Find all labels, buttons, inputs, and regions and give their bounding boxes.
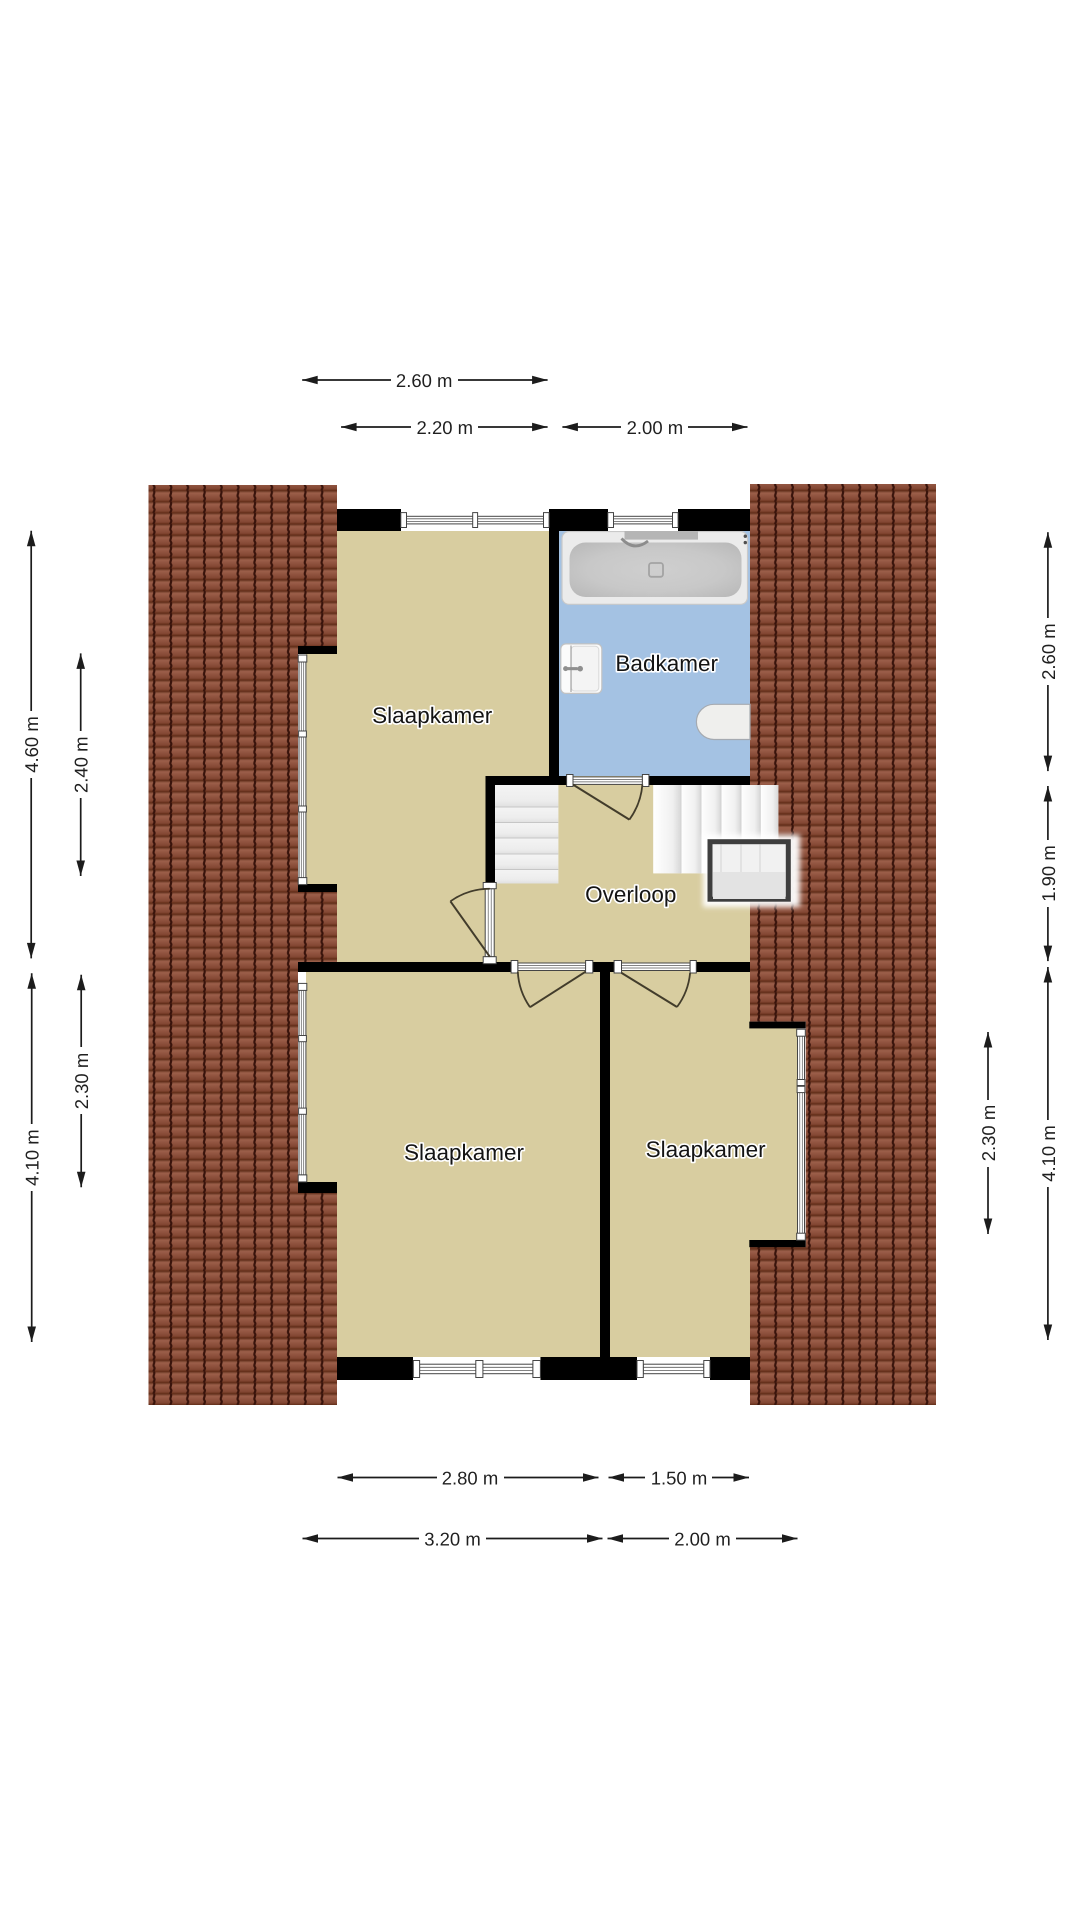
- svg-text:Badkamer: Badkamer: [615, 651, 718, 676]
- svg-text:4.60 m: 4.60 m: [21, 716, 42, 773]
- svg-text:3.20 m: 3.20 m: [424, 1529, 481, 1550]
- svg-text:Slaapkamer: Slaapkamer: [646, 1137, 767, 1162]
- svg-text:Overloop: Overloop: [585, 882, 676, 907]
- svg-text:2.00 m: 2.00 m: [627, 417, 684, 438]
- svg-text:Slaapkamer: Slaapkamer: [372, 703, 493, 728]
- svg-text:2.60 m: 2.60 m: [396, 370, 453, 391]
- svg-text:2.60 m: 2.60 m: [1038, 623, 1059, 680]
- svg-text:1.90 m: 1.90 m: [1038, 845, 1059, 902]
- svg-text:2.30 m: 2.30 m: [978, 1105, 999, 1162]
- svg-text:4.10 m: 4.10 m: [22, 1129, 43, 1186]
- svg-text:1.50 m: 1.50 m: [651, 1468, 708, 1489]
- svg-text:2.80 m: 2.80 m: [442, 1468, 499, 1489]
- svg-text:2.00 m: 2.00 m: [674, 1529, 731, 1550]
- svg-text:4.10 m: 4.10 m: [1038, 1125, 1059, 1182]
- svg-text:2.30 m: 2.30 m: [71, 1053, 92, 1110]
- svg-text:Slaapkamer: Slaapkamer: [404, 1140, 525, 1165]
- svg-text:2.40 m: 2.40 m: [71, 736, 92, 793]
- svg-text:2.20 m: 2.20 m: [417, 417, 474, 438]
